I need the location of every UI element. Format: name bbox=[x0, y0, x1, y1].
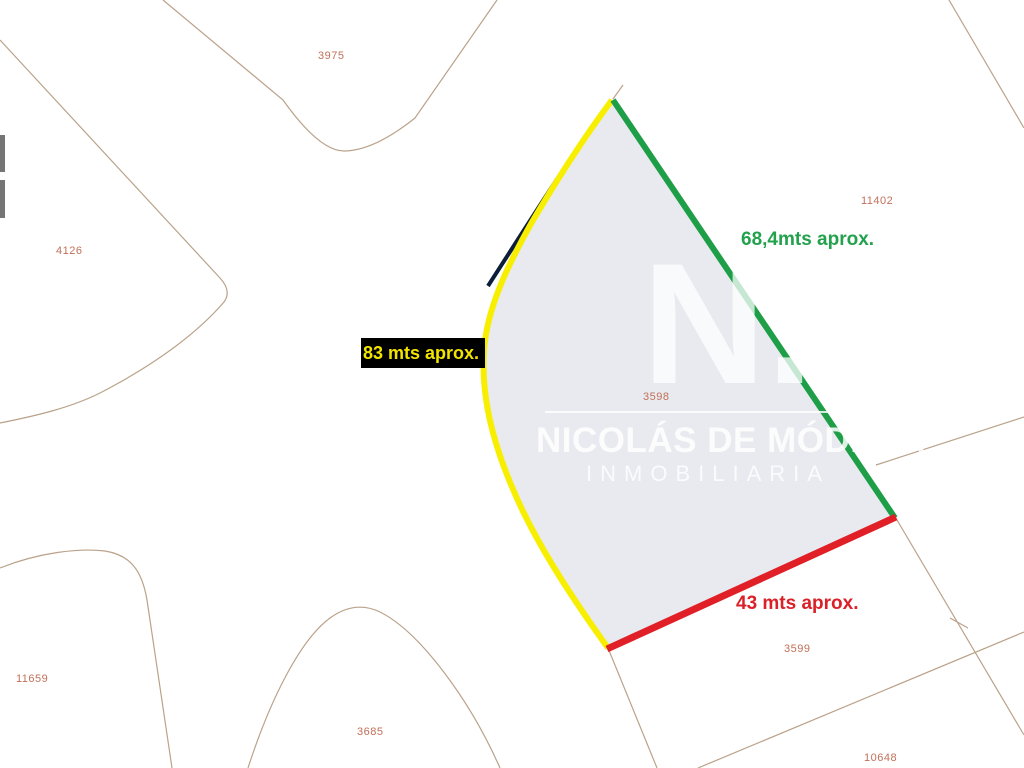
parcel-label-3685: 3685 bbox=[357, 726, 383, 738]
boundary-line-below-vertex bbox=[608, 648, 657, 768]
watermark-agency-name: NICOLÁS DE MÓDENA bbox=[536, 421, 870, 461]
boundary-line-left-corner bbox=[0, 40, 227, 423]
left-edge-bar-bottom bbox=[0, 180, 5, 218]
watermark-agency-subtitle: INMOBILIARIA bbox=[545, 461, 863, 487]
parcel-label-10648: 10648 bbox=[864, 752, 897, 764]
boundary-line-top-valley bbox=[163, 0, 497, 151]
measurement-label-right-68m: 68,4mts aprox. bbox=[741, 229, 874, 251]
parcel-label-3975: 3975 bbox=[318, 50, 344, 62]
measurement-label-left-83m: 83 mts aprox. bbox=[361, 338, 485, 368]
boundary-line-bottom-right bbox=[698, 632, 1024, 768]
boundary-line-bottom-arch bbox=[248, 607, 500, 768]
boundary-line-right-lower bbox=[897, 520, 1024, 735]
boundary-line-top-right bbox=[949, 0, 1024, 128]
boundary-stub-above-apex bbox=[613, 85, 623, 99]
boundary-line-bottom-left-curve bbox=[0, 550, 172, 768]
cadastral-map-canvas: N. NICOLÁS DE MÓDENA INMOBILIARIA 83 mts… bbox=[0, 0, 1024, 768]
parcel-label-11659: 11659 bbox=[16, 673, 48, 685]
watermark-divider bbox=[545, 411, 863, 413]
parcel-label-3598: 3598 bbox=[643, 391, 669, 403]
parcel-label-3599: 3599 bbox=[784, 643, 810, 655]
map-drawing bbox=[0, 0, 1024, 768]
boundary-stub bbox=[950, 618, 968, 628]
watermark-monogram: N. bbox=[642, 238, 814, 410]
parcel-label-11402: 11402 bbox=[861, 195, 893, 207]
left-edge-bar-top bbox=[0, 135, 5, 172]
measurement-label-bottom-43m: 43 mts aprox. bbox=[736, 593, 859, 615]
parcel-label-4126: 4126 bbox=[56, 245, 82, 257]
